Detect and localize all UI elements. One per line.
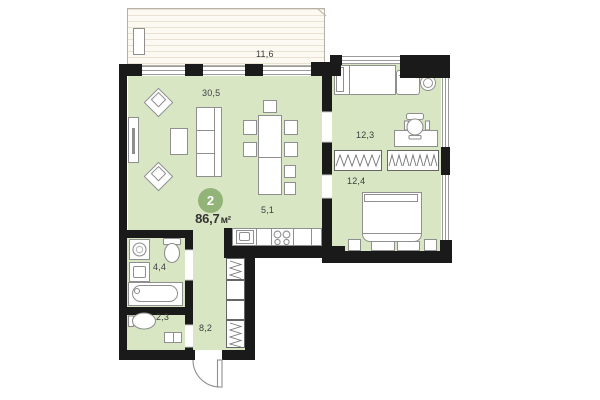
room-area-label: 11,6 (256, 50, 274, 59)
total-area: 86,7м² (186, 211, 240, 226)
door-swing-arc (193, 360, 220, 387)
washing-machine-drum (133, 243, 146, 256)
rooms-count-badge: 2 (198, 188, 223, 213)
door-opening (185, 325, 193, 347)
wardrobe-hatch (230, 261, 241, 279)
room-area-label: 8,2 (199, 324, 212, 333)
wardrobe-hatch (336, 155, 380, 166)
room-area-label: 5,1 (261, 206, 274, 215)
door-opening (185, 250, 193, 280)
room-area-label: 4,4 (153, 263, 166, 272)
fixtures-layer (0, 0, 600, 400)
wardrobe-hatch (389, 155, 437, 166)
bathtub-drain (135, 289, 140, 294)
stove-burner (275, 239, 280, 244)
wc-sink (133, 313, 156, 329)
terrace-corner-chamfer (318, 9, 326, 16)
stove-burner (274, 231, 281, 238)
office-chair-seat (407, 119, 423, 135)
room-area-label: 30,5 (202, 89, 220, 98)
entrance-door-leaf (218, 360, 223, 387)
stove-burner (284, 239, 289, 244)
room-area-label: 2,3 (156, 313, 169, 322)
wardrobe-hatch (230, 323, 241, 347)
door-opening (322, 112, 332, 142)
room-area-label: 12,4 (347, 177, 365, 186)
total-area-value: 86,7 (195, 211, 220, 226)
toilet-bowl (165, 244, 180, 263)
door-opening (322, 175, 332, 198)
room-area-label: 12,3 (356, 131, 374, 140)
floor-plan: 11,6 30,5 12,3 12,4 5,1 4,4 2,3 8,2 2 86… (0, 0, 600, 400)
stove-burner (283, 231, 290, 238)
total-area-unit: м² (221, 215, 231, 226)
